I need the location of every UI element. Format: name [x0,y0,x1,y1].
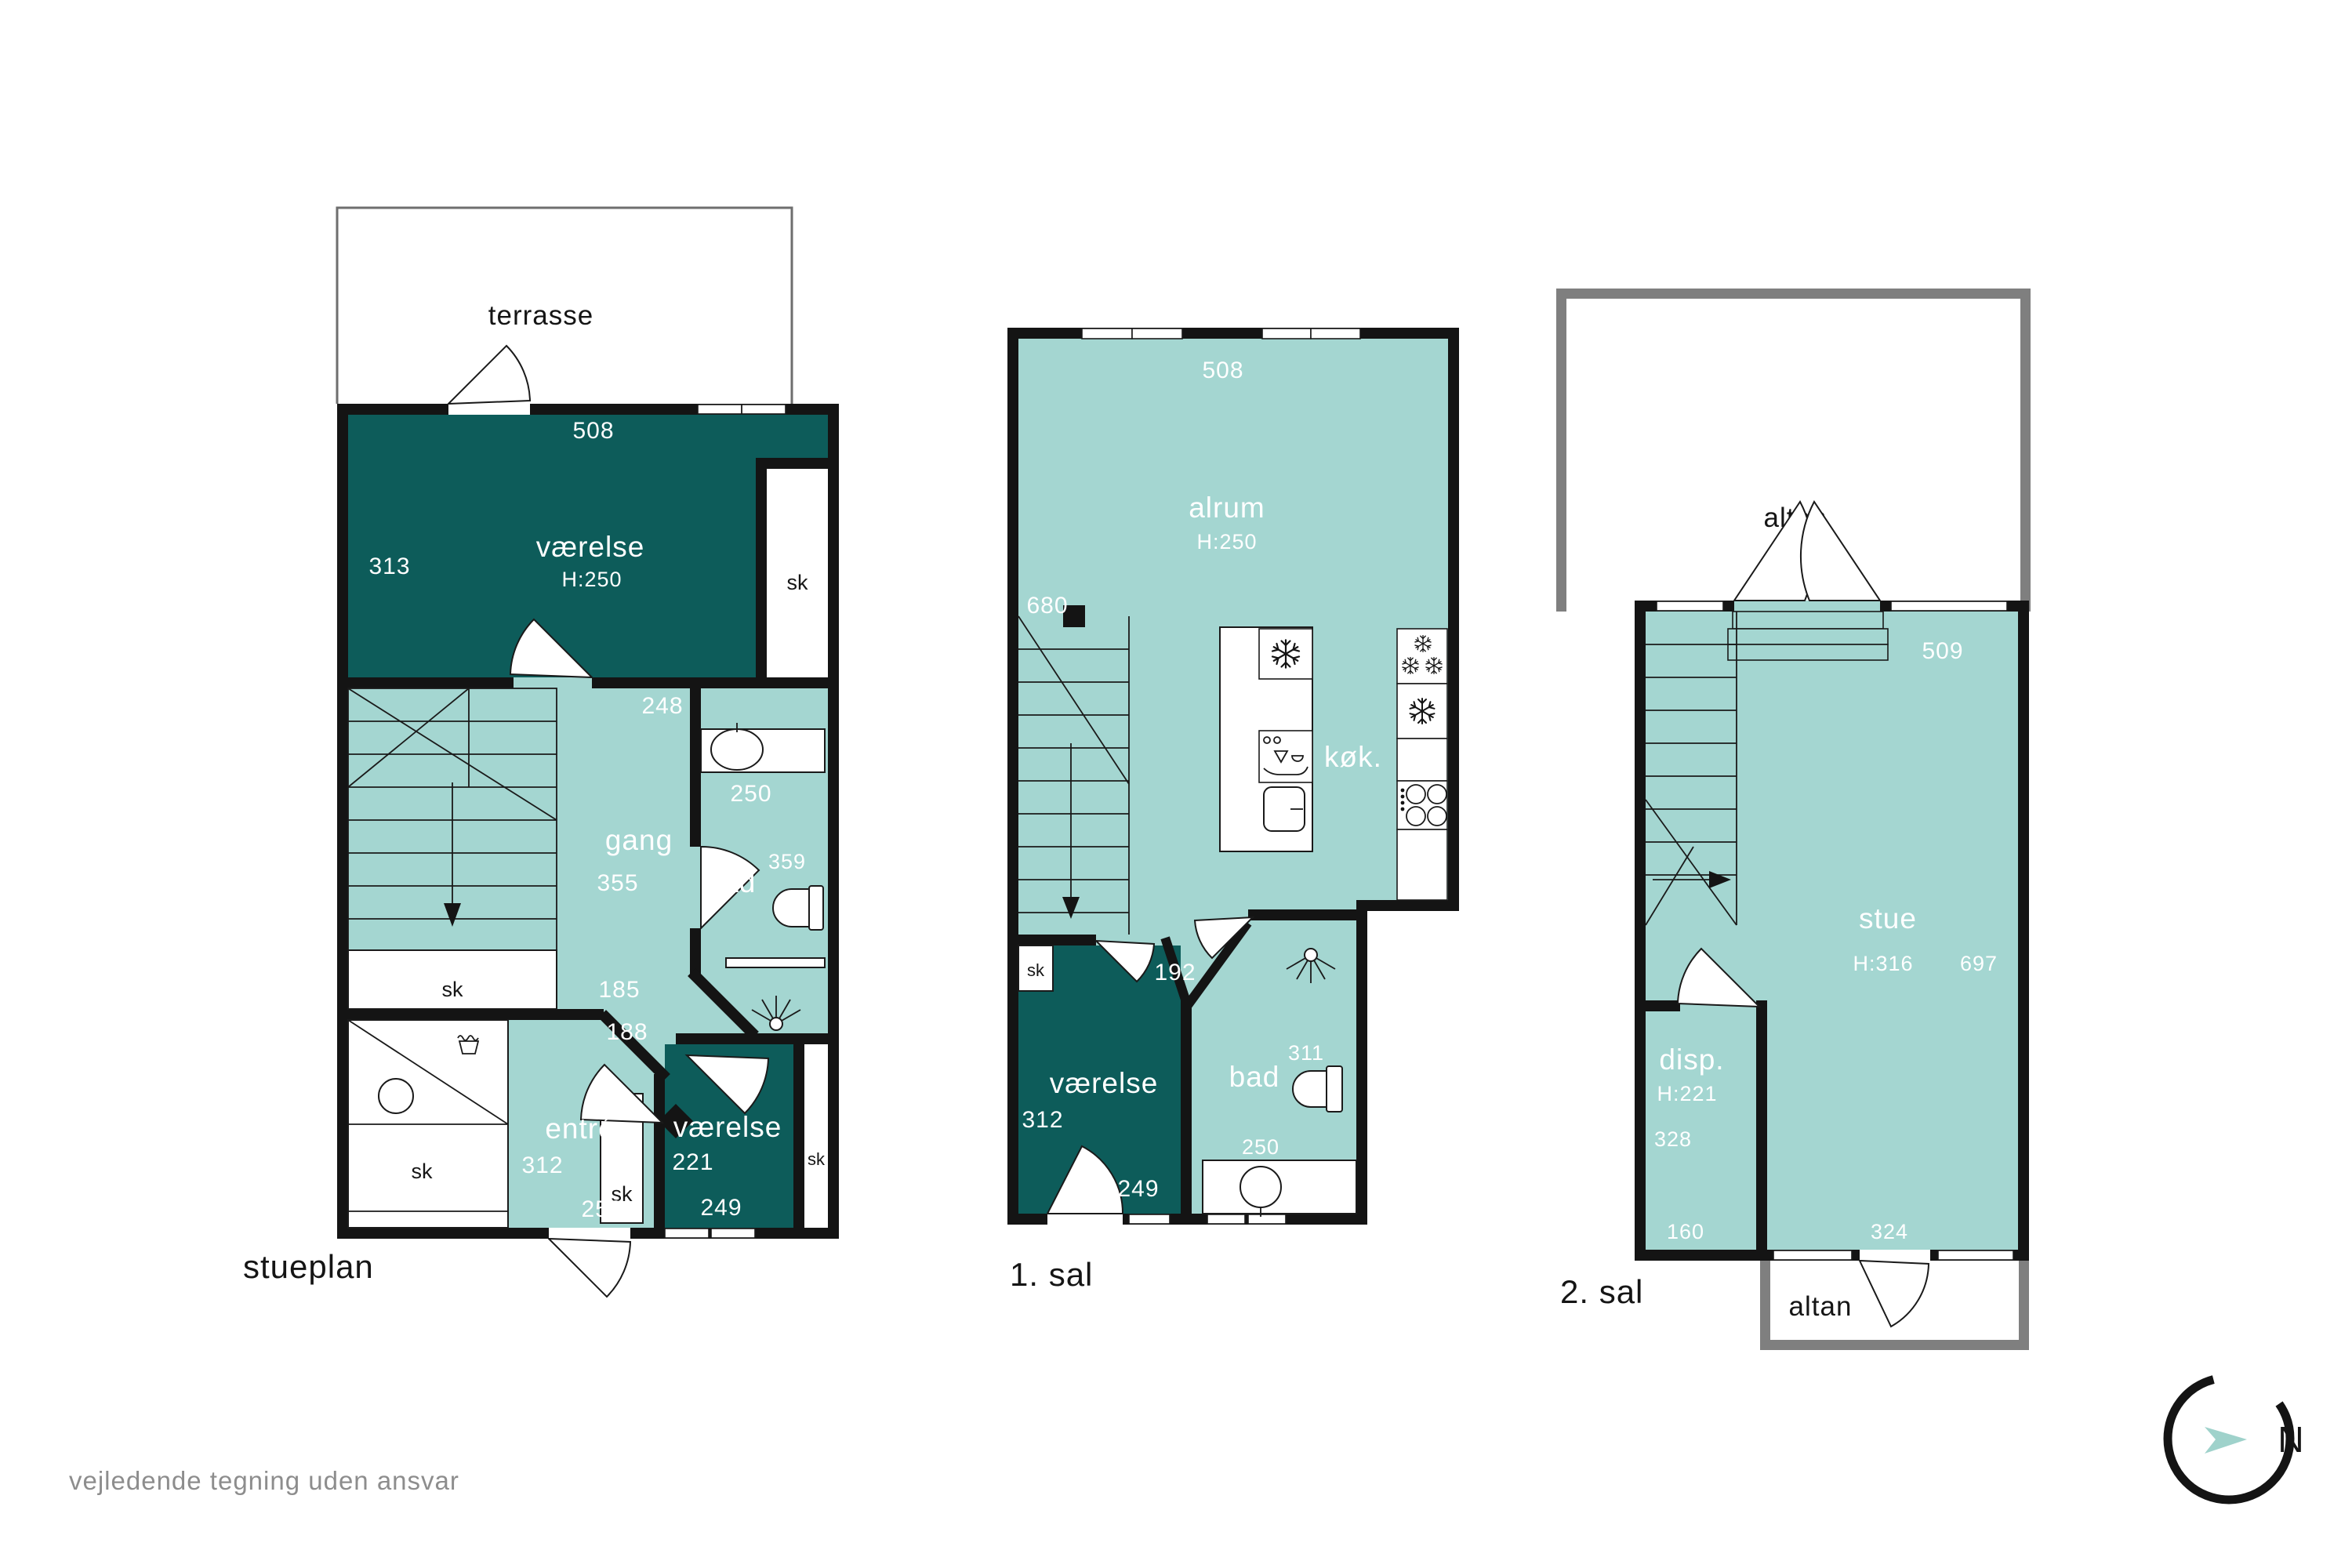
dim-508: 508 [1202,358,1243,383]
wall-sk2-lintel [793,1033,828,1044]
toilet-bowl-icon [1293,1071,1327,1107]
sk-label: sk [1027,960,1045,980]
dim-359: 359 [768,850,806,873]
window-2sal-bottom2 [1938,1250,2013,1260]
wall-sk-top [756,469,767,677]
floor-1sal: 508 alrum H:250 680 køk. sk 192 værelse … [1007,328,1459,1293]
room-label: bad [706,866,757,898]
room-height: H:221 [1657,1082,1717,1105]
wall-sk2-left [793,1044,804,1228]
dim-188: 188 [606,1019,648,1045]
dim-312: 312 [1022,1107,1063,1133]
dim-249: 249 [700,1195,742,1221]
wall-vaerelse-top-1sal [1018,935,1096,946]
window-2sal-left [1657,601,1723,611]
window-bottom-2 [711,1229,755,1238]
dim-312: 312 [521,1152,563,1178]
floor-name-1sal: 1. sal [1010,1256,1093,1293]
dim-697: 697 [1960,952,1998,975]
front-door-icon [549,1239,630,1297]
room-label: værelse [536,531,645,563]
window-1sal-a1 [1082,328,1132,339]
wall-disp-top [1646,1000,1680,1011]
cabinet-box [1397,739,1447,781]
room-label: disp. [1659,1044,1724,1076]
sk-label: sk [808,1149,826,1169]
dim-324: 324 [1871,1220,1908,1243]
dim-248: 248 [641,693,683,719]
dim-249: 249 [1117,1176,1159,1202]
window-2sal-bottom1 [1773,1250,1852,1260]
window-1sal-bottom1 [1129,1214,1170,1224]
room-label: alrum [1189,492,1265,524]
toilet-bowl-icon [773,889,809,927]
vaerelse-door-opening [514,677,592,688]
dim-250: 250 [1242,1135,1279,1159]
door-opening-1sal [1047,1214,1123,1225]
dim-160: 160 [1667,1220,1704,1243]
dim-250: 250 [581,1196,622,1222]
terrasse-label: terrasse [488,300,593,331]
window-1sal-b2 [1311,328,1360,339]
window-2sal-right [1891,601,2007,611]
closet-sk-right-bottom [804,1044,828,1228]
sk-label: sk [442,978,464,1001]
wall-entre-vaerelse [654,1074,665,1228]
kitchen-island [1220,627,1312,851]
wall-disp-right [1756,1000,1767,1261]
room-height: H:250 [1196,530,1257,554]
front-door-opening [549,1228,630,1239]
sk-label: sk [787,571,809,594]
room-label: entré [545,1112,615,1145]
sk-label: sk [412,1160,434,1183]
floor-name-stueplan: stueplan [243,1248,374,1285]
wall-sk-lintel [756,458,828,469]
freezer-top-box [1397,629,1447,684]
altan-steps [1728,612,1888,660]
room-label: bad [1229,1061,1280,1093]
terrasse-door-opening [448,404,530,415]
wall-divider2 [348,1009,604,1020]
room-label: værelse [1050,1067,1159,1099]
bad-shelf [726,958,825,967]
window-1sal-bottom3 [1248,1214,1286,1224]
room-label: gang [605,824,673,856]
wall-vaerelse-bad-1sal [1181,997,1192,1214]
compass-arrow-icon [2205,1427,2247,1454]
bathroom-sink-icon [711,729,763,770]
room-height: H:316 [1853,952,1913,975]
dim-250: 250 [730,781,771,807]
window-1sal-bottom2 [1207,1214,1245,1224]
altan-bottom-door-opening [1860,1250,1930,1261]
wall-bad-top-1sal [1248,909,1356,920]
wall-bad-left-upper [690,688,701,847]
floor-name-2sal: 2. sal [1560,1273,1643,1310]
dim-328: 328 [1654,1127,1692,1151]
floor-2sal: altan [1556,289,2031,1350]
disclaimer-text: vejledende tegning uden ansvar [69,1466,459,1495]
dim-680: 680 [1026,593,1068,619]
dim-508: 508 [572,418,614,444]
dim-185: 185 [598,977,640,1003]
bathroom-sink-icon [1240,1167,1281,1207]
compass: N [2168,1377,2304,1500]
window-bottom-1 [665,1229,709,1238]
washer-icon [379,1079,413,1113]
dim-192: 192 [1154,960,1196,985]
window-1sal-b1 [1262,328,1311,339]
toilet-tank-icon [1327,1066,1342,1112]
dim-355: 355 [597,870,638,896]
altan-label: altan [1789,1291,1853,1322]
dim-221: 221 [672,1149,713,1175]
window-1sal-a2 [1132,328,1182,339]
room-label: køk. [1324,741,1382,773]
compass-north-label: N [2278,1419,2303,1460]
floorplan-canvas: terrasse [0,0,2352,1568]
sal2-interior [1646,612,2018,1250]
room-height: H:250 [561,568,622,591]
wall-vaerelse2-top [676,1033,793,1044]
room-label: stue [1859,902,1917,935]
dim-509: 509 [1922,638,1963,664]
toilet-tank-icon [809,886,823,930]
cabinet-box [1397,829,1447,900]
dim-311: 311 [1288,1041,1324,1065]
dim-313: 313 [368,554,410,579]
appliance-column [1397,629,1447,900]
room-label: værelse [673,1111,782,1143]
floorplan-drawing: terrasse [0,0,2352,1568]
floor-stueplan: terrasse [243,208,839,1297]
altan-door-opening [1734,601,1880,612]
